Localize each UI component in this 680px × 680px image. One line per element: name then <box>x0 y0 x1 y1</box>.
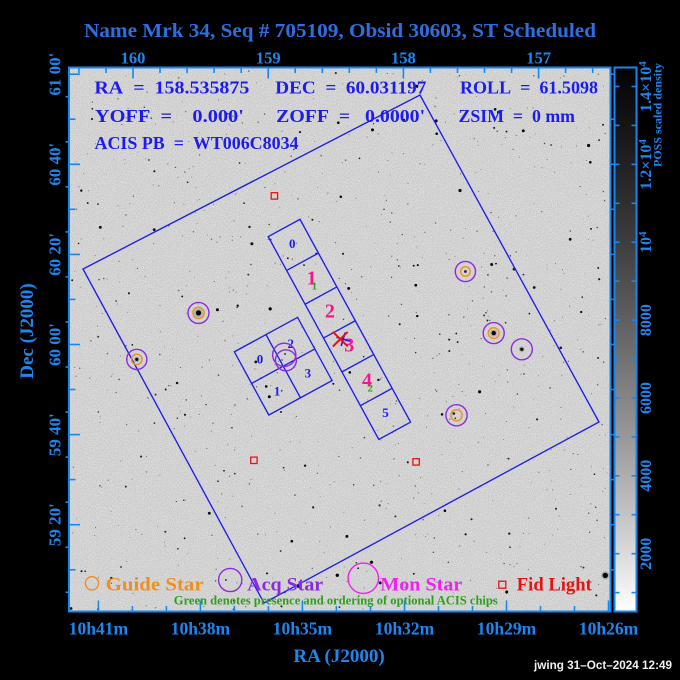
svg-text:5: 5 <box>382 405 389 420</box>
svg-text:1: 1 <box>274 384 281 399</box>
svg-text:10h29m: 10h29m <box>477 619 537 639</box>
svg-text:10h26m: 10h26m <box>579 619 639 639</box>
svg-text:4000: 4000 <box>638 460 655 492</box>
svg-text:0: 0 <box>257 352 264 367</box>
svg-text:ZOFF = 0.0000': ZOFF = 0.0000' <box>276 106 425 126</box>
svg-text:10h41m: 10h41m <box>69 619 129 639</box>
svg-text:10h35m: 10h35m <box>273 619 333 639</box>
svg-text:159: 159 <box>256 49 281 68</box>
svg-text:Fid Light: Fid Light <box>517 575 593 596</box>
svg-text:2: 2 <box>368 384 373 395</box>
svg-text:160: 160 <box>121 49 146 68</box>
svg-text:DEC = 60.031197: DEC = 60.031197 <box>275 78 426 98</box>
svg-text:ZSIM = 0 mm: ZSIM = 0 mm <box>459 106 576 126</box>
svg-text:ROLL = 61.5098: ROLL = 61.5098 <box>460 78 598 98</box>
svg-text:Dec (J2000): Dec (J2000) <box>17 283 38 379</box>
svg-text:60 20': 60 20' <box>46 233 65 276</box>
svg-text:POSS scaled density: POSS scaled density <box>651 63 665 167</box>
svg-text:10h38m: 10h38m <box>171 619 231 639</box>
svg-text:1: 1 <box>312 282 317 293</box>
svg-text:ACIS PB = WT006C8034: ACIS PB = WT006C8034 <box>95 133 299 153</box>
svg-text:RA (J2000): RA (J2000) <box>293 646 384 667</box>
svg-text:157: 157 <box>526 49 551 68</box>
svg-text:59 40': 59 40' <box>46 413 65 456</box>
svg-text:Name Mrk 34, Seq # 705109, Obs: Name Mrk 34, Seq # 705109, Obsid 30603, … <box>84 21 596 42</box>
svg-text:61 00': 61 00' <box>46 53 65 96</box>
svg-text:59 20': 59 20' <box>46 503 65 546</box>
svg-text:8000: 8000 <box>638 304 655 336</box>
svg-text:jwing 31–Oct–2024 12:49: jwing 31–Oct–2024 12:49 <box>533 658 672 672</box>
svg-text:Green denotes presence and ord: Green denotes presence and ordering of o… <box>174 593 498 607</box>
svg-text:2000: 2000 <box>638 538 655 570</box>
svg-text:158: 158 <box>391 49 416 68</box>
svg-text:10h32m: 10h32m <box>375 619 435 639</box>
svg-text:3: 3 <box>305 366 312 381</box>
svg-text:RA = 158.535875: RA = 158.535875 <box>94 78 249 98</box>
svg-text:0: 0 <box>289 236 296 251</box>
svg-text:60 40': 60 40' <box>46 143 65 186</box>
svg-text:6000: 6000 <box>638 382 655 414</box>
svg-text:YOFF = 0.000': YOFF = 0.000' <box>95 106 244 126</box>
svg-text:2: 2 <box>325 301 335 323</box>
svg-text:60 00': 60 00' <box>46 323 65 366</box>
